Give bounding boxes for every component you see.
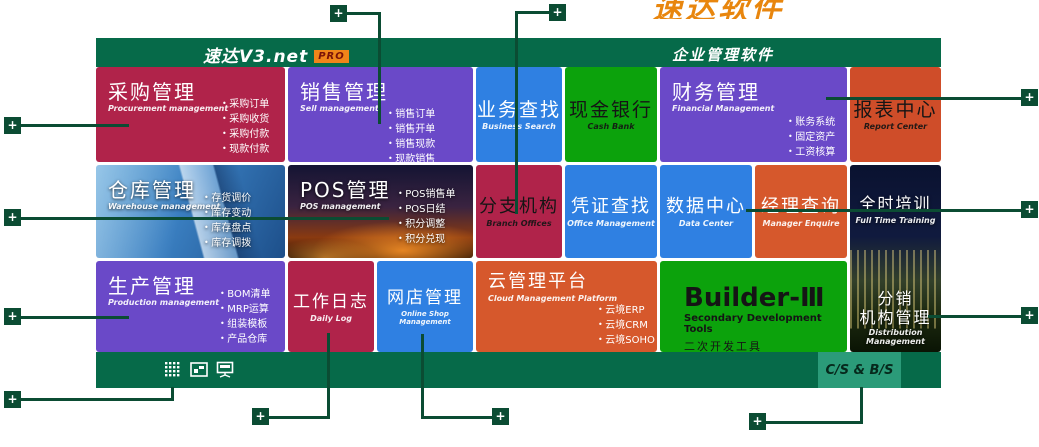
app-logo: 速达V3.netPRO xyxy=(203,42,349,67)
tile-title: 云管理平台 xyxy=(488,271,617,293)
bullet-item: 库存盘点 xyxy=(204,221,251,236)
main-panel: 速达V3.netPRO 企业管理软件 采购管理 Procurement mana… xyxy=(96,38,941,388)
tile-bullets: POS销售单 POS日结 积分调整 积分兑现 xyxy=(398,187,456,247)
tile-title-line1: 分销 xyxy=(850,289,941,308)
tile-subtitle: Procurement management xyxy=(108,104,228,113)
footer-icons xyxy=(164,361,234,379)
bullet-item: 采购订单 xyxy=(222,97,269,112)
bullet-item: 库存调拨 xyxy=(204,236,251,251)
callout-line xyxy=(269,416,330,419)
tile-pos[interactable]: POS管理 POS management POS销售单 POS日结 积分调整 积… xyxy=(288,165,473,258)
network-monitor-icon[interactable] xyxy=(216,361,234,379)
callout-line xyxy=(860,387,863,424)
tile-title: 现金银行 xyxy=(569,99,653,121)
plus-button-left-warehouse[interactable]: + xyxy=(4,209,21,226)
tile-subtitle: Cash Bank xyxy=(587,122,634,131)
tile-title: POS管理 xyxy=(300,179,391,201)
bullet-item: BOM清单 xyxy=(220,287,270,302)
plus-button-right-training[interactable]: + xyxy=(1021,201,1038,218)
callout-line xyxy=(515,11,518,214)
tile-subtitle: Production management xyxy=(108,298,219,307)
bullet-item: 采购收货 xyxy=(222,112,269,127)
tile-title: 销售管理 xyxy=(300,81,388,103)
footer-bar: C/S & B/S xyxy=(96,352,941,388)
tile-report-center[interactable]: 报表中心 Report Center xyxy=(850,67,941,162)
plus-button-bottom-csbs[interactable]: + xyxy=(749,413,766,430)
bullet-item: 现款付款 xyxy=(222,142,269,157)
tile-title: 业务查找 xyxy=(477,99,561,121)
tile-subtitle: Business Search xyxy=(482,122,556,131)
tile-data-center[interactable]: 数据中心 Data Center xyxy=(660,165,752,258)
plus-button-right-finance[interactable]: + xyxy=(1021,89,1038,106)
tile-subtitle: Sell management xyxy=(300,104,388,113)
pro-badge: PRO xyxy=(314,50,349,63)
callout-line xyxy=(424,416,493,419)
bullet-item: 销售开单 xyxy=(388,122,435,137)
tile-bullets: BOM清单 MRP运算 组装模板 产品仓库 xyxy=(220,287,270,347)
app-logo-text: 速达V3.net xyxy=(203,47,308,67)
tile-title: 凭证查找 xyxy=(571,196,651,218)
bullet-item: 云境ERP xyxy=(598,303,655,318)
watermark-text: 速达软件 xyxy=(652,0,822,19)
bullet-item: POS日结 xyxy=(398,202,456,217)
tile-bullets: 存货调价 库存变动 库存盘点 库存调拨 xyxy=(204,191,251,251)
tile-title: 工作日志 xyxy=(293,291,369,313)
callout-line xyxy=(21,398,174,401)
bullet-item: POS销售单 xyxy=(398,187,456,202)
tile-subtitle: Office Management xyxy=(567,219,655,228)
callout-line xyxy=(378,12,381,124)
tile-training-distribution[interactable]: 全时培训 Full Time Training 分销 机构管理 Distribu… xyxy=(850,165,941,352)
tile-subtitle: Online Shop Management xyxy=(377,310,473,326)
tile-subtitle: Manager Enquire xyxy=(762,219,839,228)
header-title: 企业管理软件 xyxy=(672,44,774,65)
tile-subtitle: Branch Offices xyxy=(486,219,551,228)
callout-line xyxy=(347,12,381,15)
tile-subtitle: Data Center xyxy=(679,219,733,228)
callout-line xyxy=(746,209,1022,212)
tile-voucher-search[interactable]: 凭证查找 Office Management xyxy=(565,165,657,258)
bullet-item: 存货调价 xyxy=(204,191,251,206)
tile-branch-offices[interactable]: 分支机构 Branch Offices xyxy=(476,165,562,258)
tile-cloud-platform[interactable]: 云管理平台 Cloud Management Platform 云境ERP 云境… xyxy=(476,261,657,352)
tile-online-shop[interactable]: 网店管理 Online Shop Management xyxy=(377,261,473,352)
callout-line xyxy=(826,97,1022,100)
tile-subtitle: Secondary Development Tools xyxy=(684,313,847,335)
callout-line xyxy=(766,421,863,424)
callout-line xyxy=(421,334,424,419)
tile-title: 财务管理 xyxy=(672,81,774,103)
bullet-item: 产品仓库 xyxy=(220,332,270,347)
callout-line xyxy=(21,217,389,220)
plus-button-right-distribution[interactable]: + xyxy=(1021,307,1038,324)
callout-line xyxy=(21,124,129,127)
infographic-root: { "colors":{ "brand_green":"#066a49","ca… xyxy=(0,0,1039,447)
tile-bullets: 采购订单 采购收货 采购付款 现款付款 xyxy=(222,97,269,157)
bullet-item: 账务系统 xyxy=(788,115,835,130)
callout-line xyxy=(928,315,1022,318)
tile-warehouse[interactable]: 仓库管理 Warehouse management 存货调价 库存变动 库存盘点… xyxy=(96,165,285,258)
plus-button-top-branch[interactable]: + xyxy=(549,4,566,21)
tile-bullets: 销售订单 销售开单 销售现款 现款销售 xyxy=(388,107,435,162)
bullet-item: 工资核算 xyxy=(788,145,835,160)
bullet-item: 固定资产 xyxy=(788,130,835,145)
tile-subtitle: POS management xyxy=(300,202,391,211)
tile-subtitle: Full Time Training xyxy=(850,216,941,225)
tile-finance[interactable]: 财务管理 Financial Management 账务系统 固定资产 工资核算 xyxy=(660,67,847,162)
app-grid-icon[interactable] xyxy=(164,361,182,379)
tile-title: 生产管理 xyxy=(108,275,219,297)
tile-title: 数据中心 xyxy=(666,196,746,218)
callout-line xyxy=(21,316,129,319)
bullet-item: 积分调整 xyxy=(398,217,456,232)
tile-title: 报表中心 xyxy=(853,99,937,121)
tile-bullets: 云境ERP 云境CRM 云境SOHO xyxy=(598,303,655,348)
tile-title: 经理查询 xyxy=(761,196,841,218)
plus-button-bottom-daily-log[interactable]: + xyxy=(252,408,269,425)
plus-button-left-production[interactable]: + xyxy=(4,308,21,325)
tile-title: 采购管理 xyxy=(108,81,228,103)
bullet-item: 云境SOHO xyxy=(598,333,655,348)
callout-line xyxy=(516,11,549,14)
callout-line xyxy=(327,333,330,419)
plus-button-bottom-online-shop[interactable]: + xyxy=(492,408,509,425)
bullet-item: 组装模板 xyxy=(220,317,270,332)
callout-line xyxy=(171,387,174,401)
tile-subtitle: Distribution Management xyxy=(850,328,941,346)
bullet-item: MRP运算 xyxy=(220,302,270,317)
tile-builder[interactable]: Builder-Ⅲ Secondary Development Tools 二次… xyxy=(660,261,847,352)
bullet-item: 积分兑现 xyxy=(398,232,456,247)
bullet-item: 采购付款 xyxy=(222,127,269,142)
tile-daily-log[interactable]: 工作日志 Daily Log xyxy=(288,261,374,352)
tile-production[interactable]: 生产管理 Production management BOM清单 MRP运算 组… xyxy=(96,261,285,352)
tile-bullets: 账务系统 固定资产 工资核算 xyxy=(788,115,835,160)
tile-subtitle: Financial Management xyxy=(672,104,774,113)
bullet-item: 销售现款 xyxy=(388,137,435,152)
tile-business-search[interactable]: 业务查找 Business Search xyxy=(476,67,562,162)
tile-title: Builder-Ⅲ xyxy=(684,283,847,313)
tile-subtitle: Cloud Management Platform xyxy=(488,294,617,303)
header-bar: 速达V3.netPRO 企业管理软件 xyxy=(96,38,941,67)
tile-subtitle-cn: 二次开发工具 xyxy=(684,338,847,352)
tile-procurement[interactable]: 采购管理 Procurement management 采购订单 采购收货 采购… xyxy=(96,67,285,162)
report-chart-icon[interactable] xyxy=(190,361,208,379)
bullet-item: 销售订单 xyxy=(388,107,435,122)
clipped-watermark: 速达软件 xyxy=(652,0,822,19)
plus-button-bottom-icons[interactable]: + xyxy=(4,391,21,408)
bullet-item: 现款销售 xyxy=(388,152,435,162)
plus-button-top-sales[interactable]: + xyxy=(330,5,347,22)
tile-subtitle: Report Center xyxy=(864,122,927,131)
cs-bs-badge: C/S & B/S xyxy=(818,352,901,388)
tile-cash-bank[interactable]: 现金银行 Cash Bank xyxy=(565,67,657,162)
bullet-item: 云境CRM xyxy=(598,318,655,333)
tile-title: 分支机构 xyxy=(479,196,559,218)
tile-subtitle: Daily Log xyxy=(310,314,352,323)
plus-button-left-procurement[interactable]: + xyxy=(4,117,21,134)
tile-title: 网店管理 xyxy=(387,287,463,309)
